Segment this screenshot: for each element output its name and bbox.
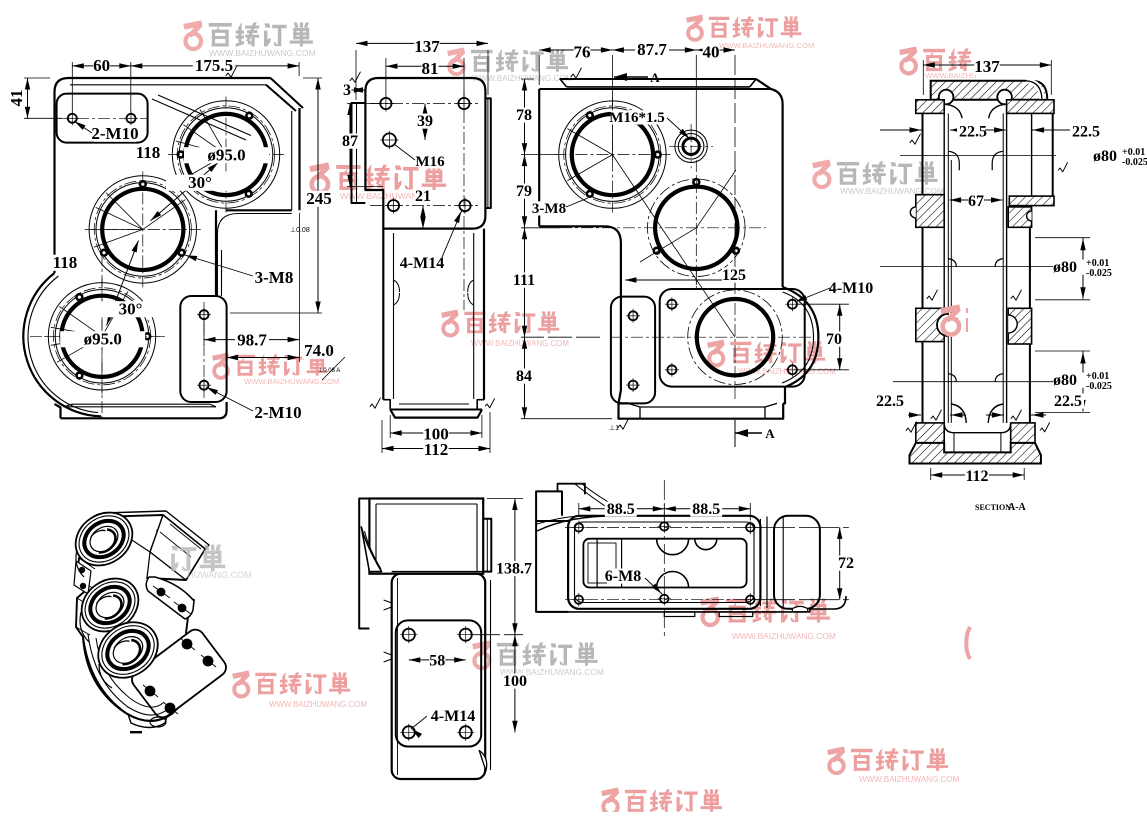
svg-text:WWW.BAIZHUWANG.COM: WWW.BAIZHUWANG.COM bbox=[244, 377, 339, 386]
svg-text:125: 125 bbox=[722, 267, 746, 284]
svg-text:87: 87 bbox=[342, 133, 358, 150]
svg-text:137: 137 bbox=[414, 37, 440, 56]
svg-text:ø95.0: ø95.0 bbox=[84, 330, 122, 349]
svg-text:3-M8: 3-M8 bbox=[255, 268, 294, 287]
svg-text:30°: 30° bbox=[188, 173, 212, 192]
svg-text:22.5: 22.5 bbox=[959, 124, 987, 141]
svg-text:-0.025: -0.025 bbox=[1086, 381, 1112, 392]
svg-text:88.5: 88.5 bbox=[692, 501, 720, 518]
svg-text:112: 112 bbox=[424, 440, 449, 459]
svg-text:SECTION: SECTION bbox=[975, 503, 1011, 512]
svg-text:ø95.0: ø95.0 bbox=[207, 146, 245, 165]
svg-text:100: 100 bbox=[503, 673, 527, 690]
svg-text:76: 76 bbox=[574, 43, 591, 62]
svg-text:A: A bbox=[650, 70, 660, 85]
svg-text:M16: M16 bbox=[415, 154, 445, 170]
svg-text:40: 40 bbox=[703, 43, 720, 62]
svg-text:3-M8: 3-M8 bbox=[532, 201, 566, 217]
svg-text:4-M10: 4-M10 bbox=[829, 280, 873, 297]
svg-text:98.7: 98.7 bbox=[237, 331, 267, 350]
svg-text:245: 245 bbox=[306, 189, 332, 208]
svg-text:78: 78 bbox=[516, 107, 532, 124]
svg-text:30°: 30° bbox=[119, 300, 143, 319]
svg-text:ø80: ø80 bbox=[1093, 148, 1117, 165]
svg-text:22.5: 22.5 bbox=[1054, 393, 1082, 410]
svg-text:118: 118 bbox=[53, 253, 78, 272]
svg-text:81: 81 bbox=[422, 59, 439, 78]
svg-text:WWW.BAIZHU: WWW.BAIZHU bbox=[925, 71, 977, 80]
svg-text:-0.025: -0.025 bbox=[1122, 157, 1147, 168]
svg-text:2-M10: 2-M10 bbox=[254, 403, 301, 422]
svg-text:137: 137 bbox=[974, 57, 1000, 76]
svg-text:87.7: 87.7 bbox=[637, 40, 667, 59]
svg-text:67: 67 bbox=[968, 193, 984, 210]
svg-text:-0.025: -0.025 bbox=[1086, 268, 1112, 279]
svg-text:ø80: ø80 bbox=[1053, 372, 1077, 389]
svg-text:A: A bbox=[765, 426, 775, 441]
svg-text:6-M8: 6-M8 bbox=[605, 568, 641, 585]
svg-text:79: 79 bbox=[516, 183, 532, 200]
svg-text:22.5: 22.5 bbox=[1072, 124, 1100, 141]
svg-text:39: 39 bbox=[417, 113, 433, 130]
svg-text:HUWANG.COM: HUWANG.COM bbox=[187, 570, 252, 580]
svg-text:4-M14: 4-M14 bbox=[431, 708, 475, 725]
svg-text:21: 21 bbox=[415, 188, 431, 205]
svg-text:3: 3 bbox=[343, 82, 351, 99]
svg-text:70: 70 bbox=[826, 331, 842, 348]
svg-text:60: 60 bbox=[93, 56, 110, 75]
svg-text:88.5: 88.5 bbox=[607, 501, 635, 518]
svg-text:111: 111 bbox=[513, 272, 535, 289]
svg-text:84: 84 bbox=[516, 368, 532, 385]
svg-text:58: 58 bbox=[429, 653, 445, 670]
svg-text:74.0: 74.0 bbox=[304, 341, 334, 360]
svg-text:WWW.BAIZHUWANG.COM: WWW.BAIZHUWANG.COM bbox=[719, 41, 814, 50]
svg-text:22.5: 22.5 bbox=[876, 393, 904, 410]
svg-text:118: 118 bbox=[136, 143, 161, 162]
svg-text:⊥1: ⊥1 bbox=[609, 425, 619, 432]
svg-text:4-M14: 4-M14 bbox=[400, 255, 444, 272]
svg-text:WWW.BAIZHUWANG.COM: WWW.BAIZHUWANG.COM bbox=[269, 700, 367, 709]
svg-text:ø80: ø80 bbox=[1053, 259, 1077, 276]
svg-text:138.7: 138.7 bbox=[496, 561, 532, 578]
svg-text:41: 41 bbox=[7, 90, 26, 107]
svg-text:112: 112 bbox=[965, 468, 988, 485]
svg-text:A-A: A-A bbox=[1008, 502, 1027, 513]
svg-text:72: 72 bbox=[838, 555, 854, 572]
svg-text:WWW.BAIZHUWANG.COM: WWW.BAIZHUWANG.COM bbox=[732, 631, 836, 641]
svg-text:WWW.BAIZHUWANG.COM: WWW.BAIZHUWANG.COM bbox=[472, 74, 573, 83]
svg-text:M16*1.5: M16*1.5 bbox=[609, 110, 664, 126]
svg-text:2-M10: 2-M10 bbox=[91, 124, 138, 143]
svg-text:175.5: 175.5 bbox=[195, 56, 233, 75]
svg-text:WWW.BAIZHUWANG.COM: WWW.BAIZHUWANG.COM bbox=[859, 775, 960, 784]
svg-text:WWW.BAIZHUWANG.COM: WWW.BAIZHUWANG.COM bbox=[471, 339, 569, 348]
svg-text:⊥0.08: ⊥0.08 bbox=[290, 227, 310, 234]
